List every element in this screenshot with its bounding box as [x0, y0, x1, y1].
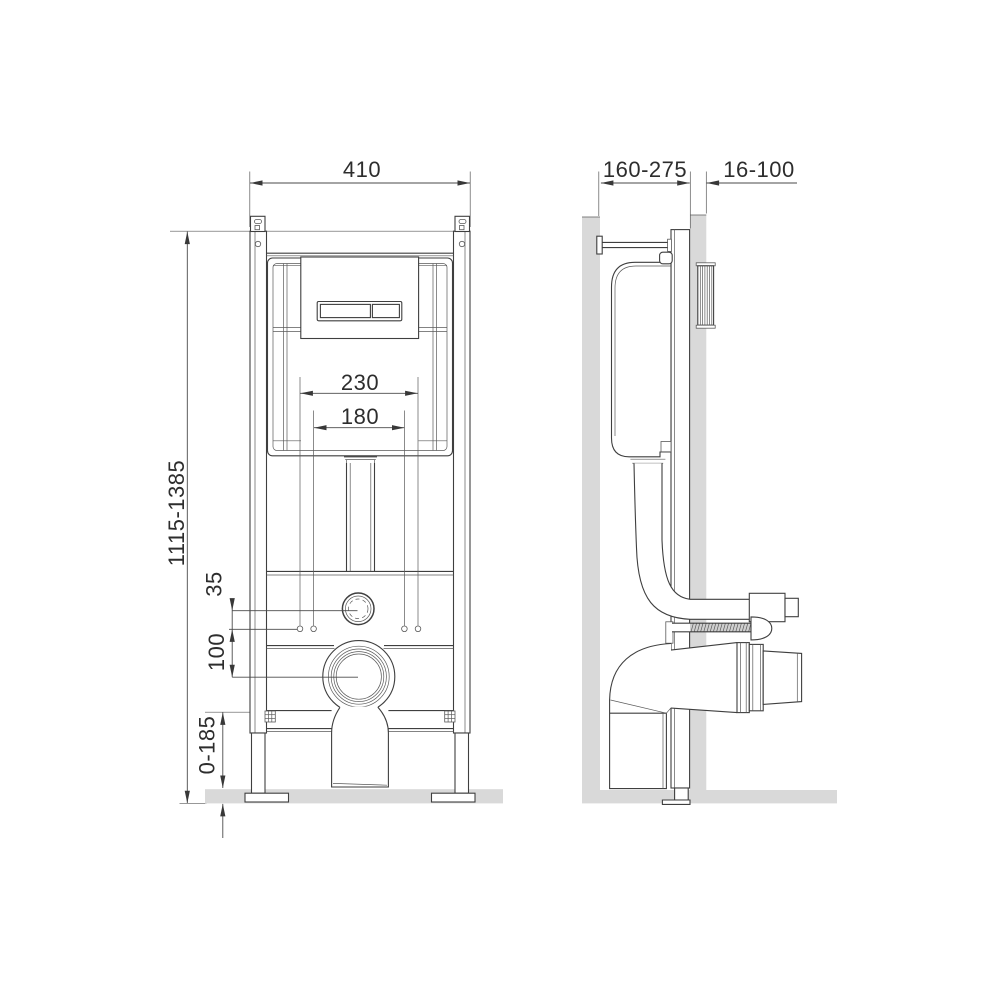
- dim-install-depth: 160-275: [601, 157, 690, 186]
- side-view: [582, 215, 837, 804]
- anchor-plate-right: [445, 711, 455, 722]
- waste-outlet-port: [323, 641, 395, 713]
- dim-frame-width: 410: [250, 157, 470, 186]
- dim-inlet-offset: 35: [202, 571, 235, 642]
- rail-hole-left: [255, 241, 260, 246]
- waste-elbow: [610, 644, 671, 789]
- dim-wall-finish: 16-100: [707, 157, 797, 186]
- flush-pipe-front: [344, 457, 377, 572]
- svg-text:180: 180: [341, 404, 379, 429]
- cistern-valve-box: [660, 252, 673, 264]
- svg-text:16-100: 16-100: [723, 157, 795, 182]
- cistern-side: [612, 252, 673, 457]
- foot-plate-right: [432, 793, 476, 802]
- protection-sleeve: [696, 263, 715, 328]
- fixing-holes: [297, 626, 421, 632]
- dim-frame-height: 1115-1385: [164, 232, 190, 804]
- wall-bracket: [597, 236, 672, 254]
- svg-text:160-275: 160-275: [603, 157, 687, 182]
- top-mounting-brackets: [251, 216, 470, 231]
- installation-diagram: 410 1115-1385 230 180: [0, 0, 1000, 1000]
- svg-text:0-185: 0-185: [195, 716, 220, 775]
- technical-drawing-canvas: 410 1115-1385 230 180: [0, 0, 1000, 1000]
- foot-plate-left: [245, 793, 289, 802]
- dim-floor-adjust: 0-185: [195, 712, 226, 838]
- svg-text:100: 100: [204, 633, 229, 671]
- rail-hole-right: [459, 241, 464, 246]
- svg-text:410: 410: [343, 157, 381, 182]
- anchor-plate-left: [265, 711, 275, 722]
- svg-text:230: 230: [341, 370, 379, 395]
- svg-text:1115-1385: 1115-1385: [164, 460, 189, 566]
- water-inlet-port: [342, 593, 374, 625]
- structural-wall: [582, 217, 600, 790]
- front-view: [170, 172, 503, 804]
- flush-panel: [301, 257, 419, 339]
- waste-downpipe-front: [332, 707, 389, 787]
- floor-side: [582, 790, 837, 803]
- svg-text:35: 35: [202, 571, 227, 596]
- waste-connector: [662, 643, 802, 713]
